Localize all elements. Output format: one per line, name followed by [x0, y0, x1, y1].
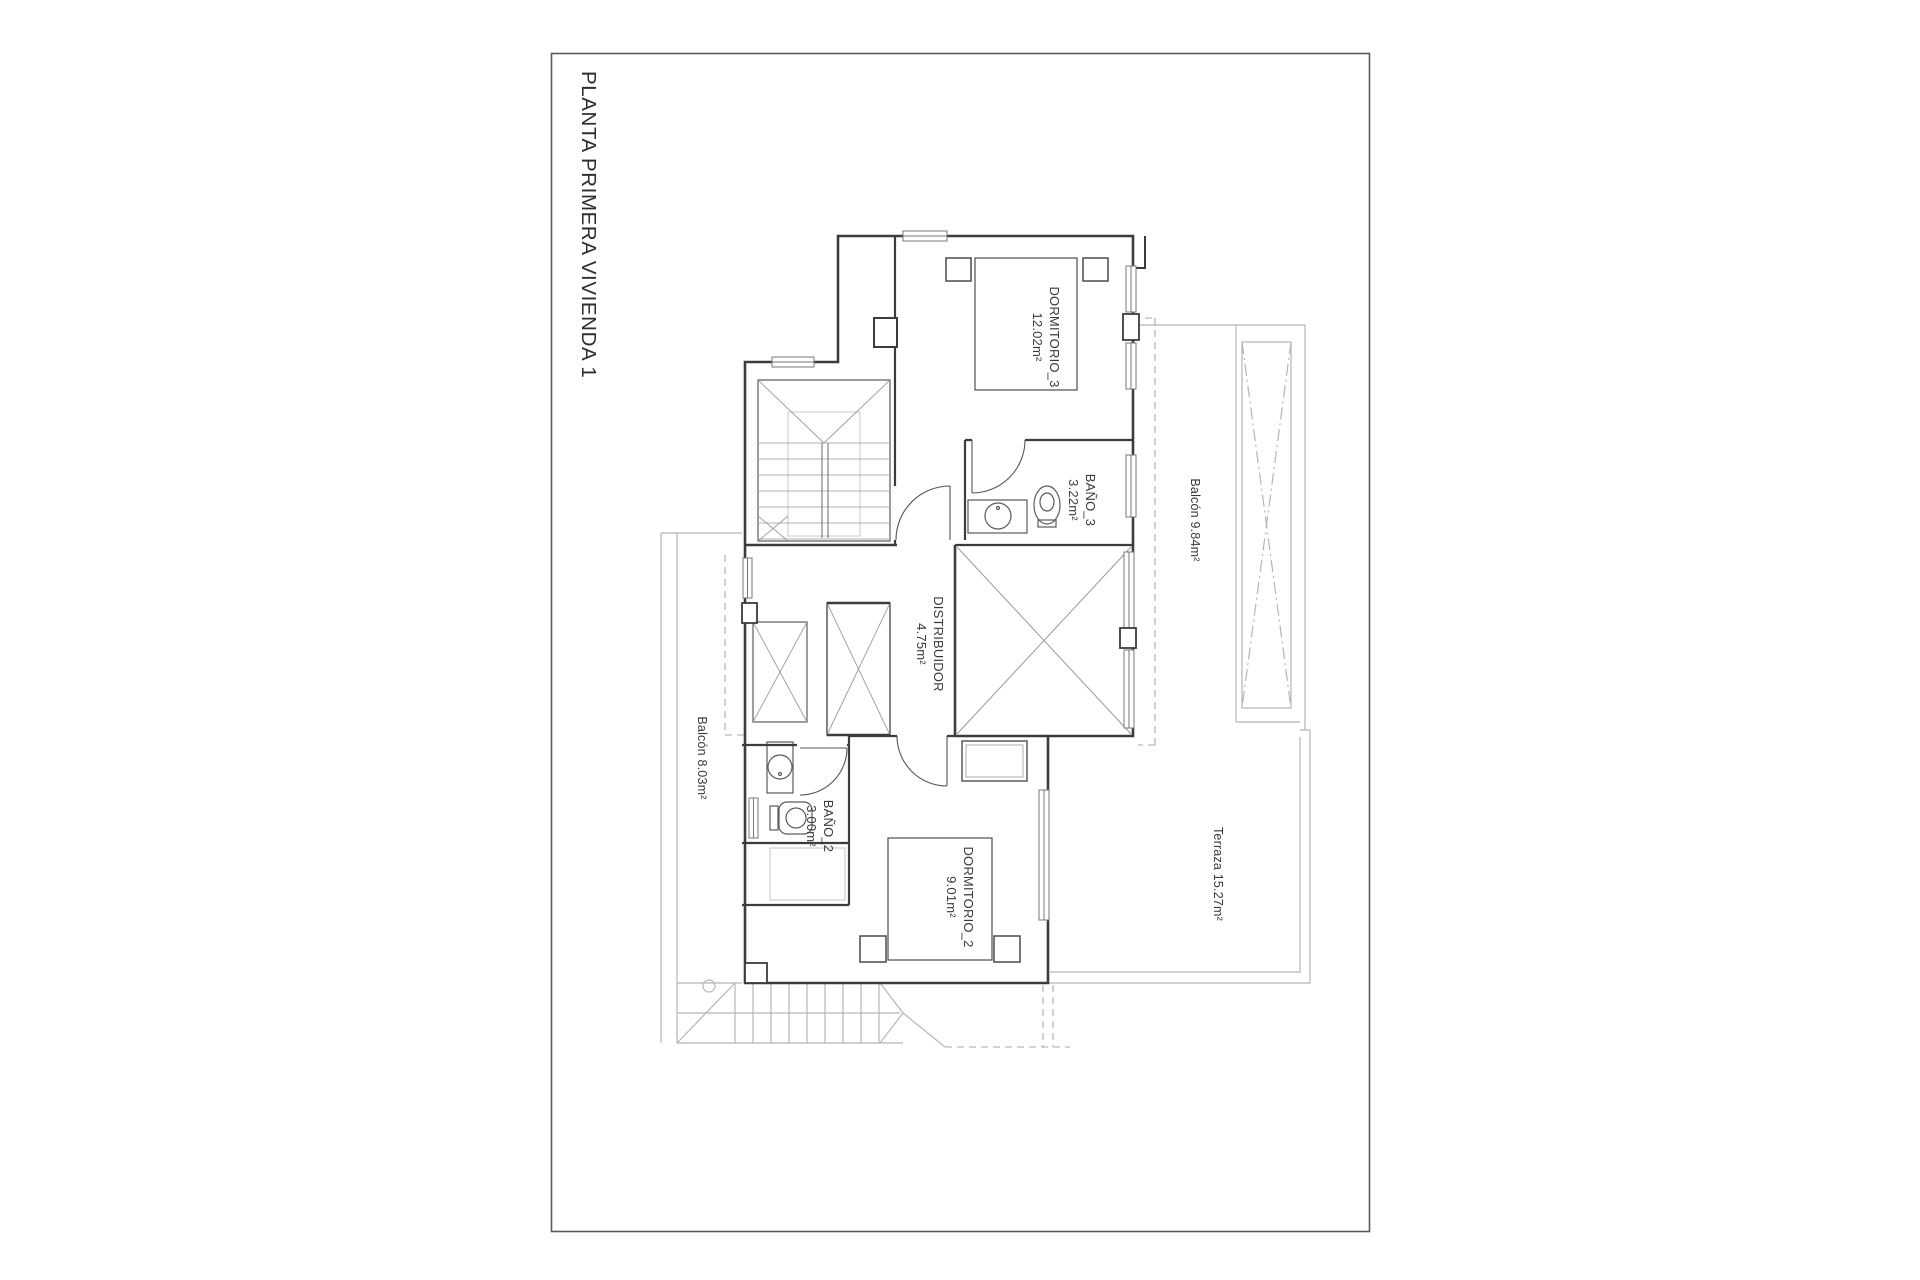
- room-area: 12.02m²: [1029, 278, 1046, 396]
- room-area: 9.01m²: [943, 838, 960, 956]
- room-label-distribuidor: DISTRIBUIDOR 4.75m²: [913, 586, 946, 702]
- room-name: BAÑO_3: [1081, 462, 1098, 538]
- room-name: BAÑO_2: [819, 788, 836, 864]
- stair-start-marker: [703, 980, 715, 992]
- window-void-a: [1124, 552, 1134, 628]
- door-stairhall: [896, 486, 950, 540]
- window-bano-3: [1126, 455, 1136, 517]
- window-balcon-a: [743, 558, 752, 598]
- drawing-sheet: PLANTA PRIMERA VIVIENDA 1 DORMITORIO_3 1…: [0, 0, 1920, 1280]
- void-cross: [957, 547, 1131, 734]
- toilet-bano-3: [1034, 486, 1060, 527]
- pillar: [874, 318, 897, 347]
- window-dormitorio-3-b: [1126, 343, 1136, 389]
- room-label-bano-3: BAÑO_3 3.22m²: [1065, 462, 1098, 538]
- sink-bano-3: [968, 500, 1027, 533]
- room-area: 3.00m²: [803, 788, 820, 864]
- door-bano-3: [972, 440, 1025, 493]
- wardrobe-dormitorio-2: [962, 741, 1027, 781]
- wardrobes: [753, 603, 890, 735]
- window-balcon-b: [749, 798, 758, 838]
- room-name: Terraza 15.27m²: [1210, 814, 1226, 934]
- window-stairhall: [772, 357, 814, 367]
- door-dormitorio-2: [897, 736, 947, 786]
- window-dormitorio-2: [1039, 790, 1049, 920]
- room-label-balcon-oeste: Balcón 8.03m²: [694, 708, 710, 808]
- room-area: 3.22m²: [1065, 462, 1082, 538]
- floor-plan-drawing: [0, 0, 1920, 1280]
- room-label-dormitorio-3: DORMITORIO_3 12.02m²: [1029, 278, 1062, 396]
- window-dormitorio-3-a: [1126, 266, 1136, 312]
- room-label-terraza: Terraza 15.27m²: [1210, 814, 1226, 934]
- exterior-staircase: [677, 980, 945, 1047]
- room-label-balcon-norte: Balcón 9.84m²: [1187, 466, 1203, 574]
- interior-staircase: [758, 380, 890, 541]
- sheet-border: [552, 54, 1370, 1232]
- window-top-wall: [903, 231, 947, 241]
- corner-pillar: [745, 963, 767, 983]
- room-label-dormitorio-2: DORMITORIO_2 9.01m²: [943, 838, 976, 956]
- mullion-block: [1123, 314, 1139, 340]
- window-void-b: [1124, 650, 1134, 728]
- bed-dormitorio-2: [860, 838, 1020, 962]
- room-label-bano-2: BAÑO_2 3.00m²: [803, 788, 836, 864]
- room-name: DISTRIBUIDOR: [929, 586, 946, 702]
- room-name: Balcón 9.84m²: [1187, 466, 1203, 574]
- sheet-title: PLANTA PRIMERA VIVIENDA 1: [576, 71, 600, 378]
- stair-railing: [822, 443, 828, 538]
- sink-bano-2: [767, 742, 793, 793]
- room-name: DORMITORIO_3: [1045, 278, 1062, 396]
- room-area: 4.75m²: [913, 586, 930, 702]
- bed-dormitorio-3: [946, 258, 1108, 390]
- room-name: Balcón 8.03m²: [694, 708, 710, 808]
- room-name: DORMITORIO_2: [959, 838, 976, 956]
- mullion-block-2: [1120, 628, 1136, 648]
